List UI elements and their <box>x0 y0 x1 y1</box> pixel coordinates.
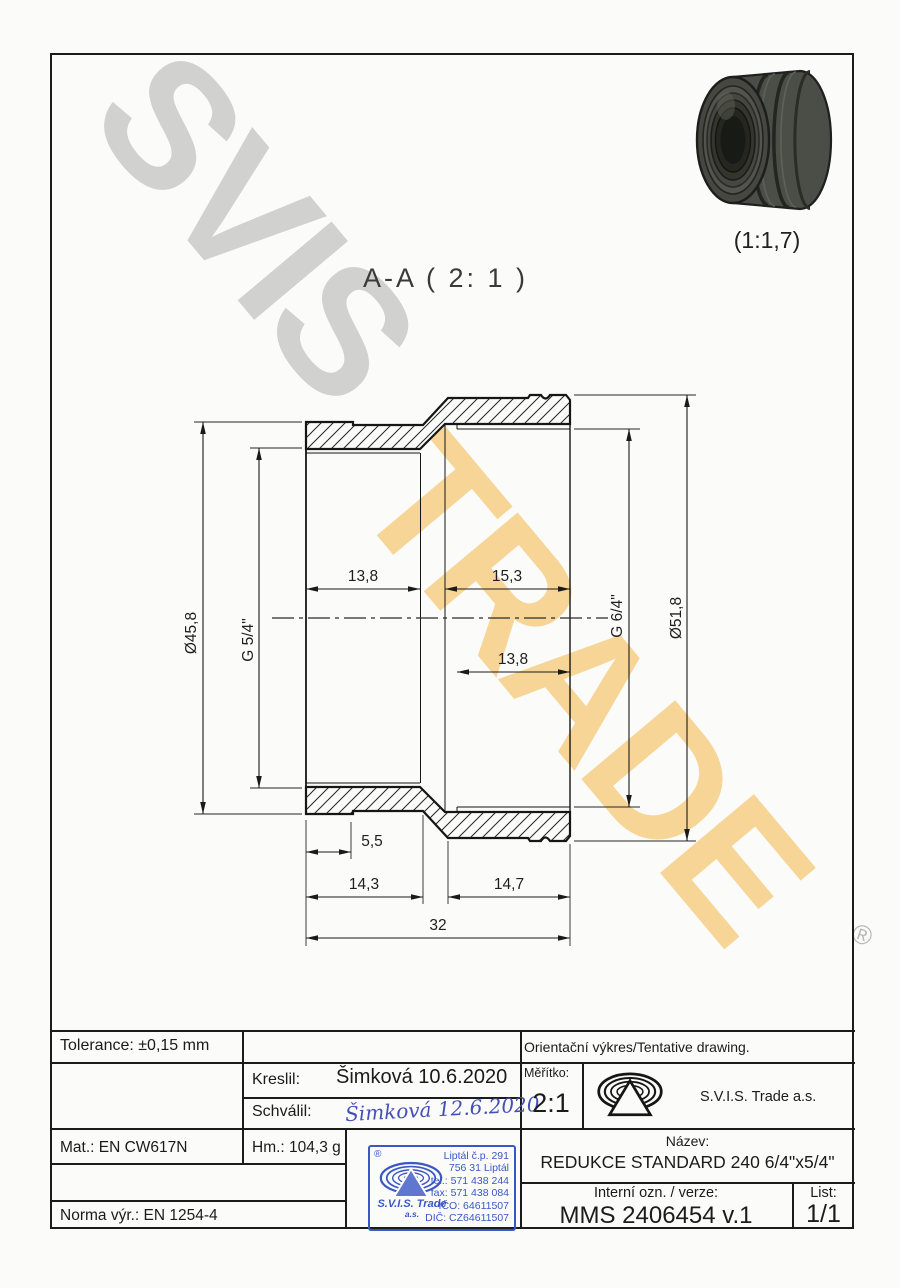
tentative-drawing-note: Orientační výkres/Tentative drawing. <box>524 1039 750 1055</box>
kreslil-value: Šimková 10.6.2020 <box>336 1066 507 1089</box>
company-stamp: ® S.V.I.S. Trade a.s. Liptál č.p. 291 75… <box>368 1145 516 1231</box>
stamp-ico-line: IČO: 64611507 <box>425 1200 509 1212</box>
titleblock-line <box>50 1062 855 1064</box>
norma-value: Norma výr.: EN 1254-4 <box>60 1207 218 1225</box>
titleblock-line <box>50 1200 345 1202</box>
stamp-dic-line: DIČ: CZ64611507 <box>425 1212 509 1224</box>
company-logo-icon <box>596 1071 664 1119</box>
titleblock-line <box>50 1030 855 1032</box>
kreslil-label: Kreslil: <box>252 1071 300 1089</box>
titleblock-line <box>582 1062 584 1128</box>
titleblock-line <box>520 1182 855 1184</box>
stamp-address-line: Liptál č.p. 291 <box>425 1150 509 1162</box>
stamp-registered-icon: ® <box>374 1149 381 1160</box>
tolerance-label: Tolerance: ±0,15 mm <box>60 1037 209 1055</box>
meritko-value: 2:1 <box>520 1088 582 1119</box>
titleblock-line <box>50 1128 855 1130</box>
interni-label: Interní ozn. / verze: <box>520 1185 792 1201</box>
stamp-fax-line: fax: 571 438 084 <box>425 1187 509 1199</box>
list-value: 1/1 <box>792 1200 855 1229</box>
nazev-value: REDUKCE STANDARD 240 6/4"x5/4" <box>520 1152 855 1173</box>
company-name: S.V.I.S. Trade a.s. <box>700 1089 816 1105</box>
schvalil-label: Schválil: <box>252 1103 312 1121</box>
titleblock-line <box>50 1163 345 1165</box>
stamp-address: Liptál č.p. 291 756 31 Liptál tel.: 571 … <box>425 1150 509 1224</box>
titleblock-line <box>242 1030 244 1165</box>
interni-value: MMS 2406454 v.1 <box>520 1202 792 1230</box>
stamp-address-line: 756 31 Liptál <box>425 1162 509 1174</box>
stamp-phone-line: tel.: 571 438 244 <box>425 1175 509 1187</box>
weight-value: Hm.: 104,3 g <box>252 1139 341 1157</box>
drawing-sheet: SVIS TRADE ® A-A ( 2: 1 ) <box>0 0 900 1288</box>
titleblock-line <box>345 1128 347 1228</box>
nazev-label: Název: <box>520 1133 855 1149</box>
list-label: List: <box>792 1185 855 1201</box>
material-value: Mat.: EN CW617N <box>60 1139 187 1157</box>
meritko-label: Měřítko: <box>524 1066 569 1080</box>
